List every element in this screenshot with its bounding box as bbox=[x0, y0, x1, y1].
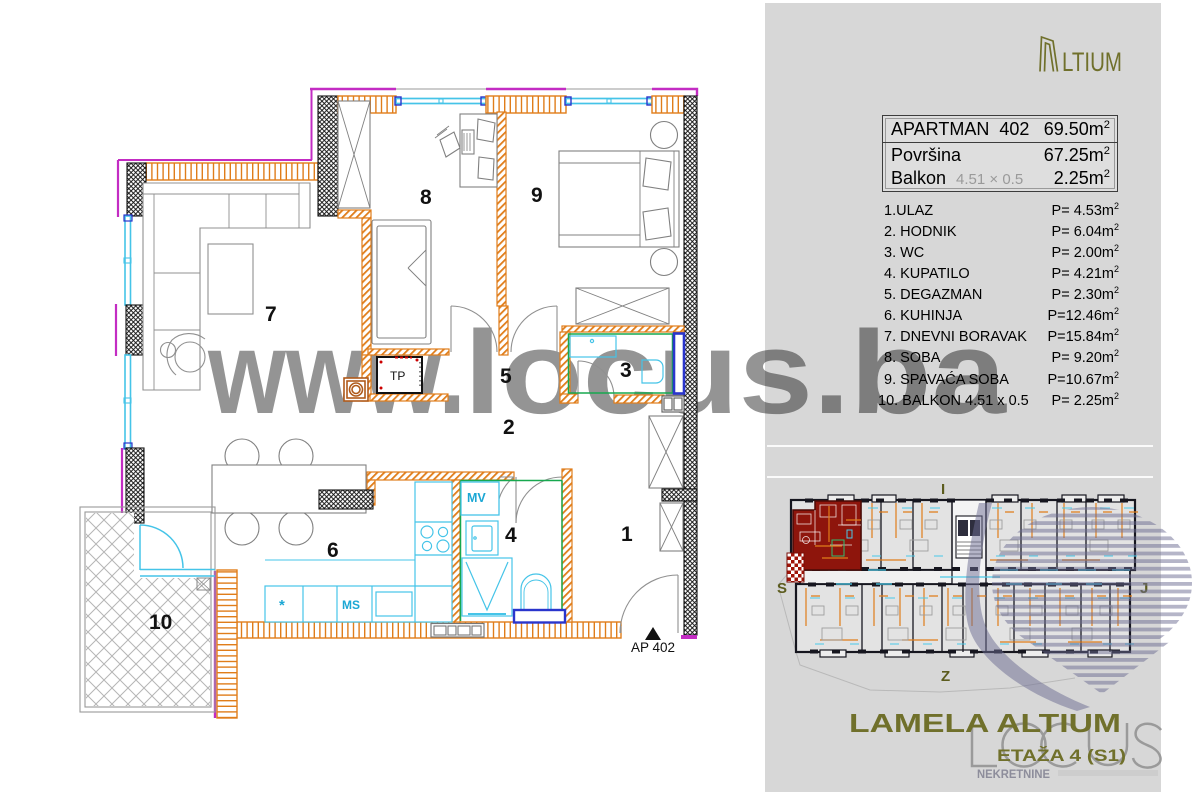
svg-text:NEKRETNINE: NEKRETNINE bbox=[977, 769, 1050, 781]
svg-text:AP 402: AP 402 bbox=[631, 640, 675, 655]
svg-text:4: 4 bbox=[505, 524, 517, 547]
svg-text:ETAŽA 4 (S1): ETAŽA 4 (S1) bbox=[997, 746, 1126, 765]
svg-text:S: S bbox=[777, 580, 787, 597]
svg-text:2: 2 bbox=[503, 416, 515, 439]
svg-text:5: 5 bbox=[500, 365, 512, 388]
svg-text:1: 1 bbox=[621, 523, 633, 546]
svg-text:8: 8 bbox=[420, 186, 432, 209]
svg-text:LAMELA ALTIUM: LAMELA ALTIUM bbox=[849, 708, 1121, 738]
svg-text:3: 3 bbox=[620, 359, 632, 382]
svg-text:LTIUM: LTIUM bbox=[1062, 47, 1122, 77]
svg-text:7: 7 bbox=[265, 303, 277, 326]
svg-text:9: 9 bbox=[531, 184, 543, 207]
svg-text:*: * bbox=[279, 597, 285, 614]
svg-text:MS: MS bbox=[342, 598, 360, 612]
svg-text:Z: Z bbox=[941, 668, 950, 685]
svg-text:10: 10 bbox=[149, 611, 172, 634]
svg-text:I: I bbox=[941, 481, 945, 498]
svg-text:TP: TP bbox=[390, 369, 405, 383]
svg-text:MV: MV bbox=[467, 491, 486, 505]
svg-text:6: 6 bbox=[327, 539, 339, 562]
